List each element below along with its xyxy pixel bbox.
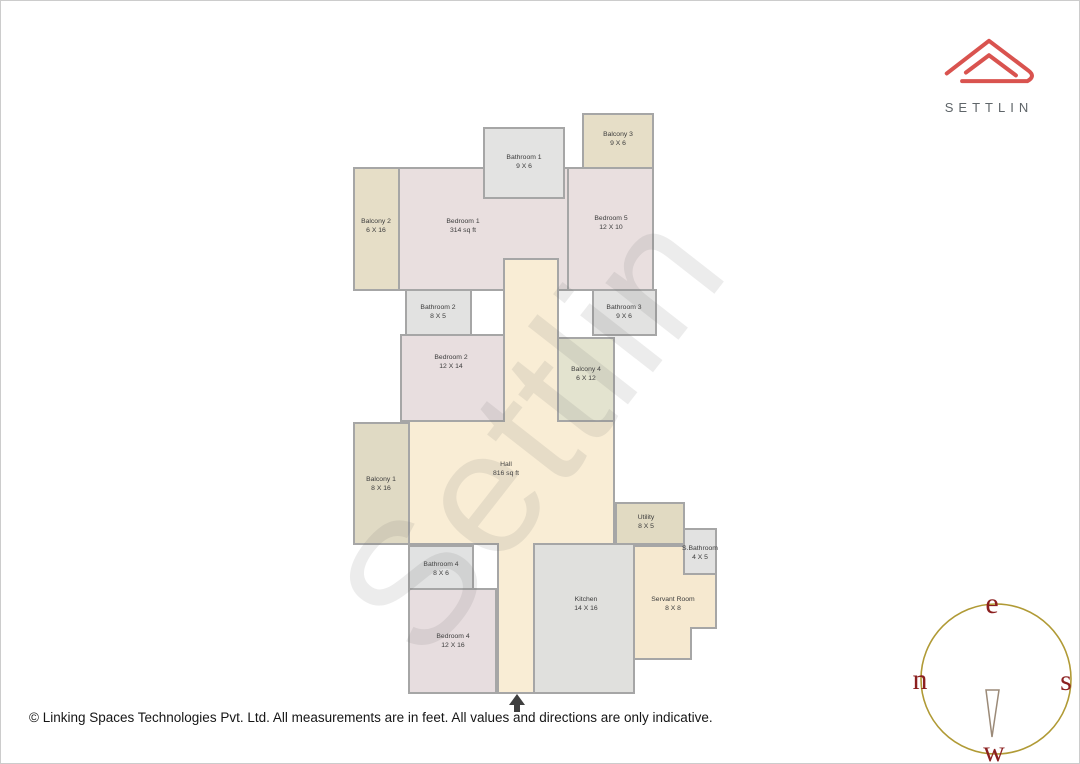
room-kitchen-name: Kitchen	[575, 596, 598, 603]
room-balcony-2-dims: 6 X 16	[366, 227, 386, 234]
rooms-layer: Balcony 26 X 16Bedroom 1314 sq ftBedroom…	[354, 114, 718, 693]
room-balcony-2-name: Balcony 2	[361, 218, 391, 225]
compass-west-label: w	[983, 735, 1005, 764]
room-bedroom-4-dims: 12 X 16	[441, 642, 465, 649]
room-bathroom-4-dims: 8 X 6	[433, 570, 449, 577]
room-s-bathroom-name: S.Bathroom	[682, 545, 718, 552]
house-roof-icon	[941, 29, 1037, 91]
room-servant-room-name: Servant Room	[651, 596, 695, 603]
room-bathroom-2-name: Bathroom 2	[420, 304, 455, 311]
copyright-text: © Linking Spaces Technologies Pvt. Ltd. …	[29, 710, 713, 725]
room-kitchen-dims: 14 X 16	[574, 605, 598, 612]
room-bathroom-1-dims: 9 X 6	[516, 163, 532, 170]
room-bedroom-1-name: Bedroom 1	[446, 218, 479, 225]
room-kitchen	[534, 544, 634, 693]
room-utility-dims: 8 X 5	[638, 523, 654, 530]
floorplan-canvas: Balcony 26 X 16Bedroom 1314 sq ftBedroom…	[0, 0, 1080, 764]
room-bedroom-2-name: Bedroom 2	[434, 354, 467, 361]
room-bathroom-3-dims: 9 X 6	[616, 313, 632, 320]
room-balcony-3-dims: 9 X 6	[610, 140, 626, 147]
room-balcony-3-name: Balcony 3	[603, 131, 633, 138]
room-balcony-1	[354, 423, 409, 544]
room-hall-name: Hall	[500, 461, 512, 468]
room-balcony-1-dims: 8 X 16	[371, 485, 391, 492]
room-bedroom-4-name: Bedroom 4	[436, 633, 469, 640]
room-balcony-1-name: Balcony 1	[366, 476, 396, 483]
room-balcony-4-dims: 6 X 12	[576, 375, 596, 382]
compass-south-label: s	[1060, 664, 1072, 697]
room-bedroom-5-name: Bedroom 5	[594, 215, 627, 222]
room-bedroom-4	[409, 589, 496, 693]
room-bedroom-2	[401, 335, 504, 421]
room-bathroom-4-name: Bathroom 4	[423, 561, 458, 568]
compass: e n s w	[904, 584, 1080, 764]
settlin-logo-text: SETTLIN	[937, 100, 1041, 115]
compass-ring	[921, 604, 1071, 754]
compass-needle-icon	[986, 690, 999, 737]
room-hall-dims: 816 sq ft	[493, 470, 519, 477]
room-bathroom-1-name: Bathroom 1	[506, 154, 541, 161]
compass-north-label: n	[913, 663, 928, 696]
room-bathroom-2-dims: 8 X 5	[430, 313, 446, 320]
room-bathroom-3-name: Bathroom 3	[606, 304, 641, 311]
compass-east-label: e	[985, 587, 998, 620]
settlin-logo: SETTLIN	[937, 29, 1041, 115]
room-bedroom-2-dims: 12 X 14	[439, 363, 463, 370]
room-balcony-4-name: Balcony 4	[571, 366, 601, 373]
room-utility-name: Utility	[638, 514, 655, 521]
room-servant-room-dims: 8 X 8	[665, 605, 681, 612]
room-bedroom-5-dims: 12 X 10	[599, 224, 623, 231]
room-s-bathroom-dims: 4 X 5	[692, 554, 708, 561]
room-bedroom-1-dims: 314 sq ft	[450, 227, 476, 234]
